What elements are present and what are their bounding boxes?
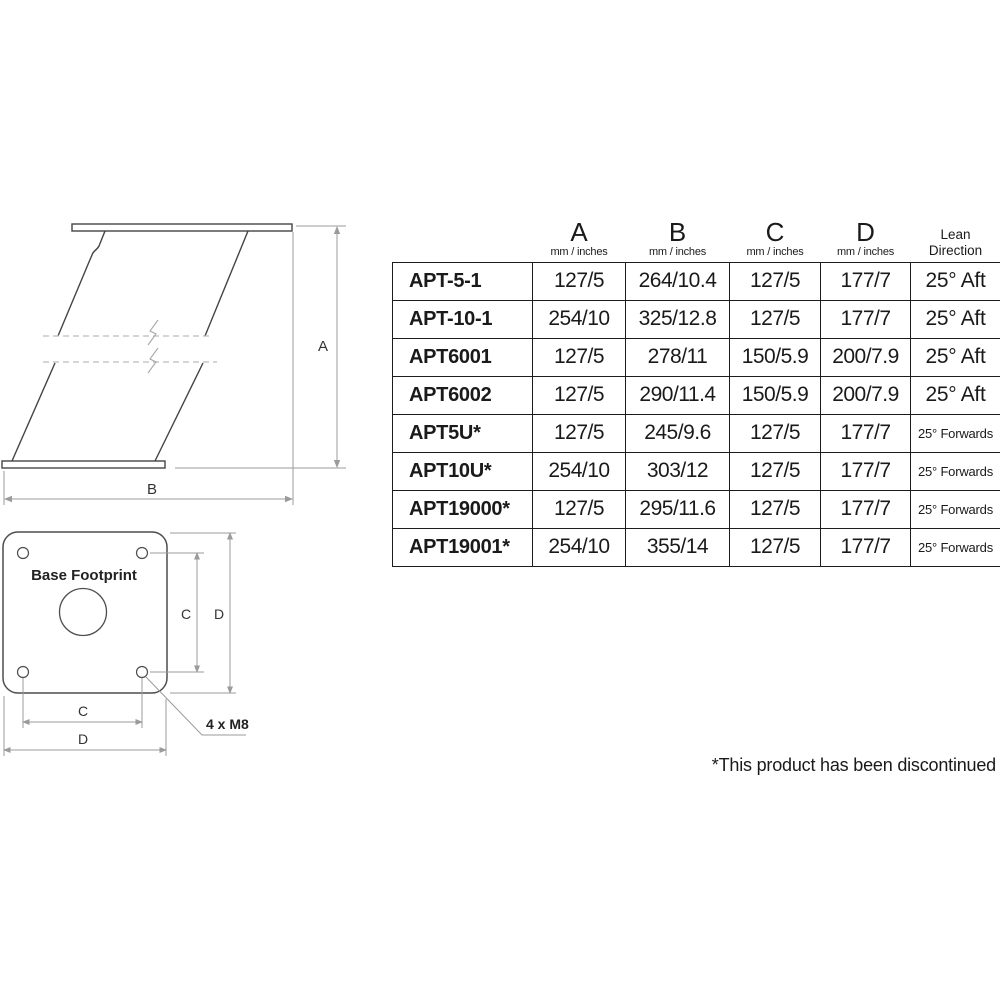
lean-cell: 25° Forwards bbox=[911, 490, 1000, 528]
column-right-edge-upper bbox=[205, 231, 248, 336]
base-plate bbox=[2, 461, 165, 468]
dim-label-c-vertical: C bbox=[181, 606, 191, 622]
value-cell-c: 127/5 bbox=[730, 452, 821, 490]
value-cell-b: 303/12 bbox=[626, 452, 730, 490]
model-cell: APT5U* bbox=[393, 414, 533, 452]
bolt-hole-bottom-right bbox=[137, 667, 148, 678]
top-plate bbox=[72, 224, 292, 231]
header-a-unit: mm / inches bbox=[533, 246, 626, 259]
header-d-label: D bbox=[821, 220, 911, 244]
pedestal-side-view-diagram: A B bbox=[0, 210, 350, 510]
column-left-edge-lower bbox=[12, 363, 55, 461]
dim-b-arrow-left bbox=[4, 496, 12, 502]
value-cell-d: 177/7 bbox=[821, 262, 911, 300]
model-cell: APT-5-1 bbox=[393, 262, 533, 300]
header-col-lean: Lean Direction bbox=[911, 215, 1000, 262]
value-cell-c: 127/5 bbox=[730, 262, 821, 300]
model-cell: APT10U* bbox=[393, 452, 533, 490]
base-footprint-diagram: Base Footprint C D C D 4 x M8 bbox=[0, 520, 270, 770]
value-cell-a: 127/5 bbox=[533, 338, 626, 376]
lean-cell: 25° Aft bbox=[911, 376, 1000, 414]
value-cell-d: 177/7 bbox=[821, 300, 911, 338]
header-lean-line2: Direction bbox=[911, 243, 1000, 259]
value-cell-c: 150/5.9 bbox=[730, 376, 821, 414]
value-cell-d: 177/7 bbox=[821, 528, 911, 566]
lean-cell: 25° Forwards bbox=[911, 452, 1000, 490]
header-b-unit: mm / inches bbox=[626, 246, 730, 259]
header-d-unit: mm / inches bbox=[821, 246, 911, 259]
model-cell: APT19000* bbox=[393, 490, 533, 528]
header-b-label: B bbox=[626, 220, 730, 244]
value-cell-c: 150/5.9 bbox=[730, 338, 821, 376]
value-cell-d: 200/7.9 bbox=[821, 376, 911, 414]
value-cell-a: 254/10 bbox=[533, 452, 626, 490]
value-cell-b: 325/12.8 bbox=[626, 300, 730, 338]
table-row: APT6002 127/5 290/11.4 150/5.9 200/7.9 2… bbox=[393, 376, 1000, 414]
column-left-edge-upper bbox=[58, 231, 105, 336]
value-cell-b: 290/11.4 bbox=[626, 376, 730, 414]
value-cell-d: 177/7 bbox=[821, 414, 911, 452]
model-cell: APT19001* bbox=[393, 528, 533, 566]
value-cell-c: 127/5 bbox=[730, 490, 821, 528]
bolt-hole-top-right bbox=[137, 548, 148, 559]
header-col-c: C mm / inches bbox=[730, 215, 821, 262]
table-row: APT6001 127/5 278/11 150/5.9 200/7.9 25°… bbox=[393, 338, 1000, 376]
header-col-a: A mm / inches bbox=[533, 215, 626, 262]
value-cell-a: 127/5 bbox=[533, 376, 626, 414]
table-row: APT-5-1 127/5 264/10.4 127/5 177/7 25° A… bbox=[393, 262, 1000, 300]
lean-cell: 25° Aft bbox=[911, 300, 1000, 338]
value-cell-a: 127/5 bbox=[533, 262, 626, 300]
dim-label-b: B bbox=[147, 481, 157, 498]
value-cell-b: 295/11.6 bbox=[626, 490, 730, 528]
spec-sheet-page: A B Base Footprint C D bbox=[0, 0, 1000, 1000]
column-right-edge-lower bbox=[155, 363, 203, 461]
header-model bbox=[393, 215, 533, 262]
bolt-note-label: 4 x M8 bbox=[206, 716, 249, 732]
dim-label-d-horizontal: D bbox=[78, 731, 88, 747]
dim-label-d-vertical: D bbox=[214, 606, 224, 622]
discontinued-note: *This product has been discontinued bbox=[712, 755, 996, 776]
break-zigzag-lower bbox=[148, 348, 158, 373]
value-cell-d: 177/7 bbox=[821, 490, 911, 528]
break-zigzag-upper bbox=[148, 320, 158, 345]
value-cell-b: 278/11 bbox=[626, 338, 730, 376]
header-col-b: B mm / inches bbox=[626, 215, 730, 262]
model-cell: APT-10-1 bbox=[393, 300, 533, 338]
table-row: APT19000* 127/5 295/11.6 127/5 177/7 25°… bbox=[393, 490, 1000, 528]
table-row: APT10U* 254/10 303/12 127/5 177/7 25° Fo… bbox=[393, 452, 1000, 490]
header-a-label: A bbox=[533, 220, 626, 244]
dim-label-a: A bbox=[318, 338, 328, 355]
center-bore bbox=[60, 589, 107, 636]
table-row: APT5U* 127/5 245/9.6 127/5 177/7 25° For… bbox=[393, 414, 1000, 452]
spec-table: A mm / inches B mm / inches C mm / inche… bbox=[392, 215, 1000, 567]
bolt-hole-bottom-left bbox=[18, 667, 29, 678]
value-cell-d: 177/7 bbox=[821, 452, 911, 490]
footprint-title: Base Footprint bbox=[31, 567, 137, 584]
value-cell-b: 264/10.4 bbox=[626, 262, 730, 300]
header-lean-line1: Lean bbox=[911, 227, 1000, 243]
lean-cell: 25° Forwards bbox=[911, 528, 1000, 566]
value-cell-a: 254/10 bbox=[533, 300, 626, 338]
value-cell-b: 355/14 bbox=[626, 528, 730, 566]
model-cell: APT6001 bbox=[393, 338, 533, 376]
bolt-hole-top-left bbox=[18, 548, 29, 559]
lean-cell: 25° Aft bbox=[911, 338, 1000, 376]
lean-cell: 25° Aft bbox=[911, 262, 1000, 300]
value-cell-a: 127/5 bbox=[533, 414, 626, 452]
dim-a-arrow-bottom bbox=[334, 460, 340, 468]
header-col-d: D mm / inches bbox=[821, 215, 911, 262]
spec-table-section: A mm / inches B mm / inches C mm / inche… bbox=[392, 215, 1000, 567]
spec-table-header: A mm / inches B mm / inches C mm / inche… bbox=[393, 215, 1000, 262]
value-cell-c: 127/5 bbox=[730, 300, 821, 338]
dim-b-arrow-right bbox=[285, 496, 293, 502]
value-cell-a: 127/5 bbox=[533, 490, 626, 528]
table-row: APT19001* 254/10 355/14 127/5 177/7 25° … bbox=[393, 528, 1000, 566]
value-cell-d: 200/7.9 bbox=[821, 338, 911, 376]
header-c-unit: mm / inches bbox=[730, 246, 821, 259]
value-cell-c: 127/5 bbox=[730, 528, 821, 566]
lean-cell: 25° Forwards bbox=[911, 414, 1000, 452]
dim-a-arrow-top bbox=[334, 226, 340, 234]
header-c-label: C bbox=[730, 220, 821, 244]
value-cell-a: 254/10 bbox=[533, 528, 626, 566]
value-cell-c: 127/5 bbox=[730, 414, 821, 452]
table-row: APT-10-1 254/10 325/12.8 127/5 177/7 25°… bbox=[393, 300, 1000, 338]
dim-label-c-horizontal: C bbox=[78, 703, 88, 719]
value-cell-b: 245/9.6 bbox=[626, 414, 730, 452]
model-cell: APT6002 bbox=[393, 376, 533, 414]
